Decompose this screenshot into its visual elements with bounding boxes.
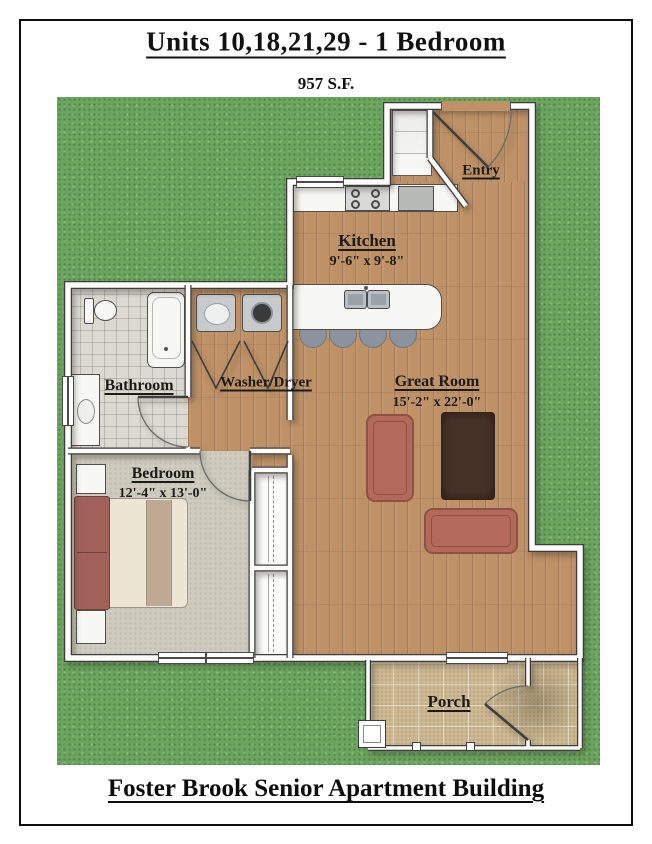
bathroom-label: Bathroom bbox=[104, 377, 173, 395]
entry-label: Entry bbox=[462, 163, 500, 180]
island-sink-right bbox=[367, 290, 390, 309]
nightstand bbox=[76, 464, 106, 494]
washer-tub bbox=[204, 303, 230, 325]
stove-burner bbox=[351, 189, 360, 198]
porch-door-threshold bbox=[446, 652, 508, 664]
great-room-dimensions: 15'-2" x 22'-0" bbox=[393, 395, 482, 411]
headboard-divider bbox=[77, 552, 107, 553]
front-door-opening bbox=[441, 101, 511, 111]
sofa-cushions bbox=[431, 515, 511, 547]
toilet-bowl bbox=[94, 300, 117, 321]
porch-label: Porch bbox=[427, 692, 470, 712]
bedroom-dimensions: 12'-4" x 13'-0" bbox=[119, 486, 208, 502]
sofa-horizontal bbox=[424, 508, 518, 554]
great-room-extension-floor bbox=[532, 548, 580, 658]
washer bbox=[196, 294, 236, 332]
porch-post bbox=[412, 742, 421, 751]
refrigerator bbox=[398, 186, 434, 211]
toilet-tank bbox=[84, 298, 94, 324]
closet-shelf-line bbox=[395, 131, 429, 132]
square-footage: 957 S.F. bbox=[298, 74, 355, 94]
kitchen-dimensions: 9'-6" x 9'-8" bbox=[330, 254, 405, 270]
page-title: Units 10,18,21,29 - 1 Bedroom bbox=[146, 27, 506, 58]
porch-post bbox=[466, 742, 475, 751]
island-sink-left bbox=[344, 290, 367, 309]
sofa-vertical bbox=[366, 414, 414, 502]
kitchen-window bbox=[296, 176, 344, 188]
stove bbox=[345, 186, 390, 211]
stove-burner bbox=[371, 189, 380, 198]
vanity-sink bbox=[77, 399, 95, 424]
kitchen-island bbox=[290, 284, 442, 330]
closet-shelf-line bbox=[395, 153, 429, 154]
window-mullion bbox=[205, 653, 207, 663]
bathroom-window bbox=[62, 376, 74, 426]
bed-blanket bbox=[146, 500, 172, 606]
nightstand bbox=[76, 610, 106, 644]
bathtub bbox=[147, 292, 185, 368]
sofa-cushions bbox=[373, 421, 407, 495]
bed-headboard bbox=[74, 496, 110, 610]
porch-shadow bbox=[492, 660, 580, 746]
porch-column bbox=[358, 720, 386, 748]
bathtub-drain bbox=[164, 347, 168, 351]
entry-closet bbox=[392, 110, 432, 176]
stove-burner bbox=[371, 200, 380, 209]
dryer-drum bbox=[251, 302, 273, 324]
faucet bbox=[364, 286, 368, 290]
stove-burner bbox=[351, 200, 360, 209]
floor-plan-poster: { "header": { "title": "Units 10,18,21,2… bbox=[0, 0, 652, 844]
closet-rod bbox=[268, 476, 274, 562]
building-name: Foster Brook Senior Apartment Building bbox=[108, 775, 544, 803]
bedroom-label: Bedroom bbox=[132, 465, 195, 483]
washer-dryer-label: Washer/Dryer bbox=[220, 375, 312, 392]
bedroom-window bbox=[158, 652, 254, 664]
dryer bbox=[242, 294, 282, 332]
kitchen-label: Kitchen bbox=[338, 231, 396, 251]
great-room-label: Great Room bbox=[395, 373, 480, 391]
area-rug bbox=[441, 412, 495, 500]
closet-rod bbox=[268, 574, 274, 652]
bathroom-vanity bbox=[70, 374, 100, 446]
